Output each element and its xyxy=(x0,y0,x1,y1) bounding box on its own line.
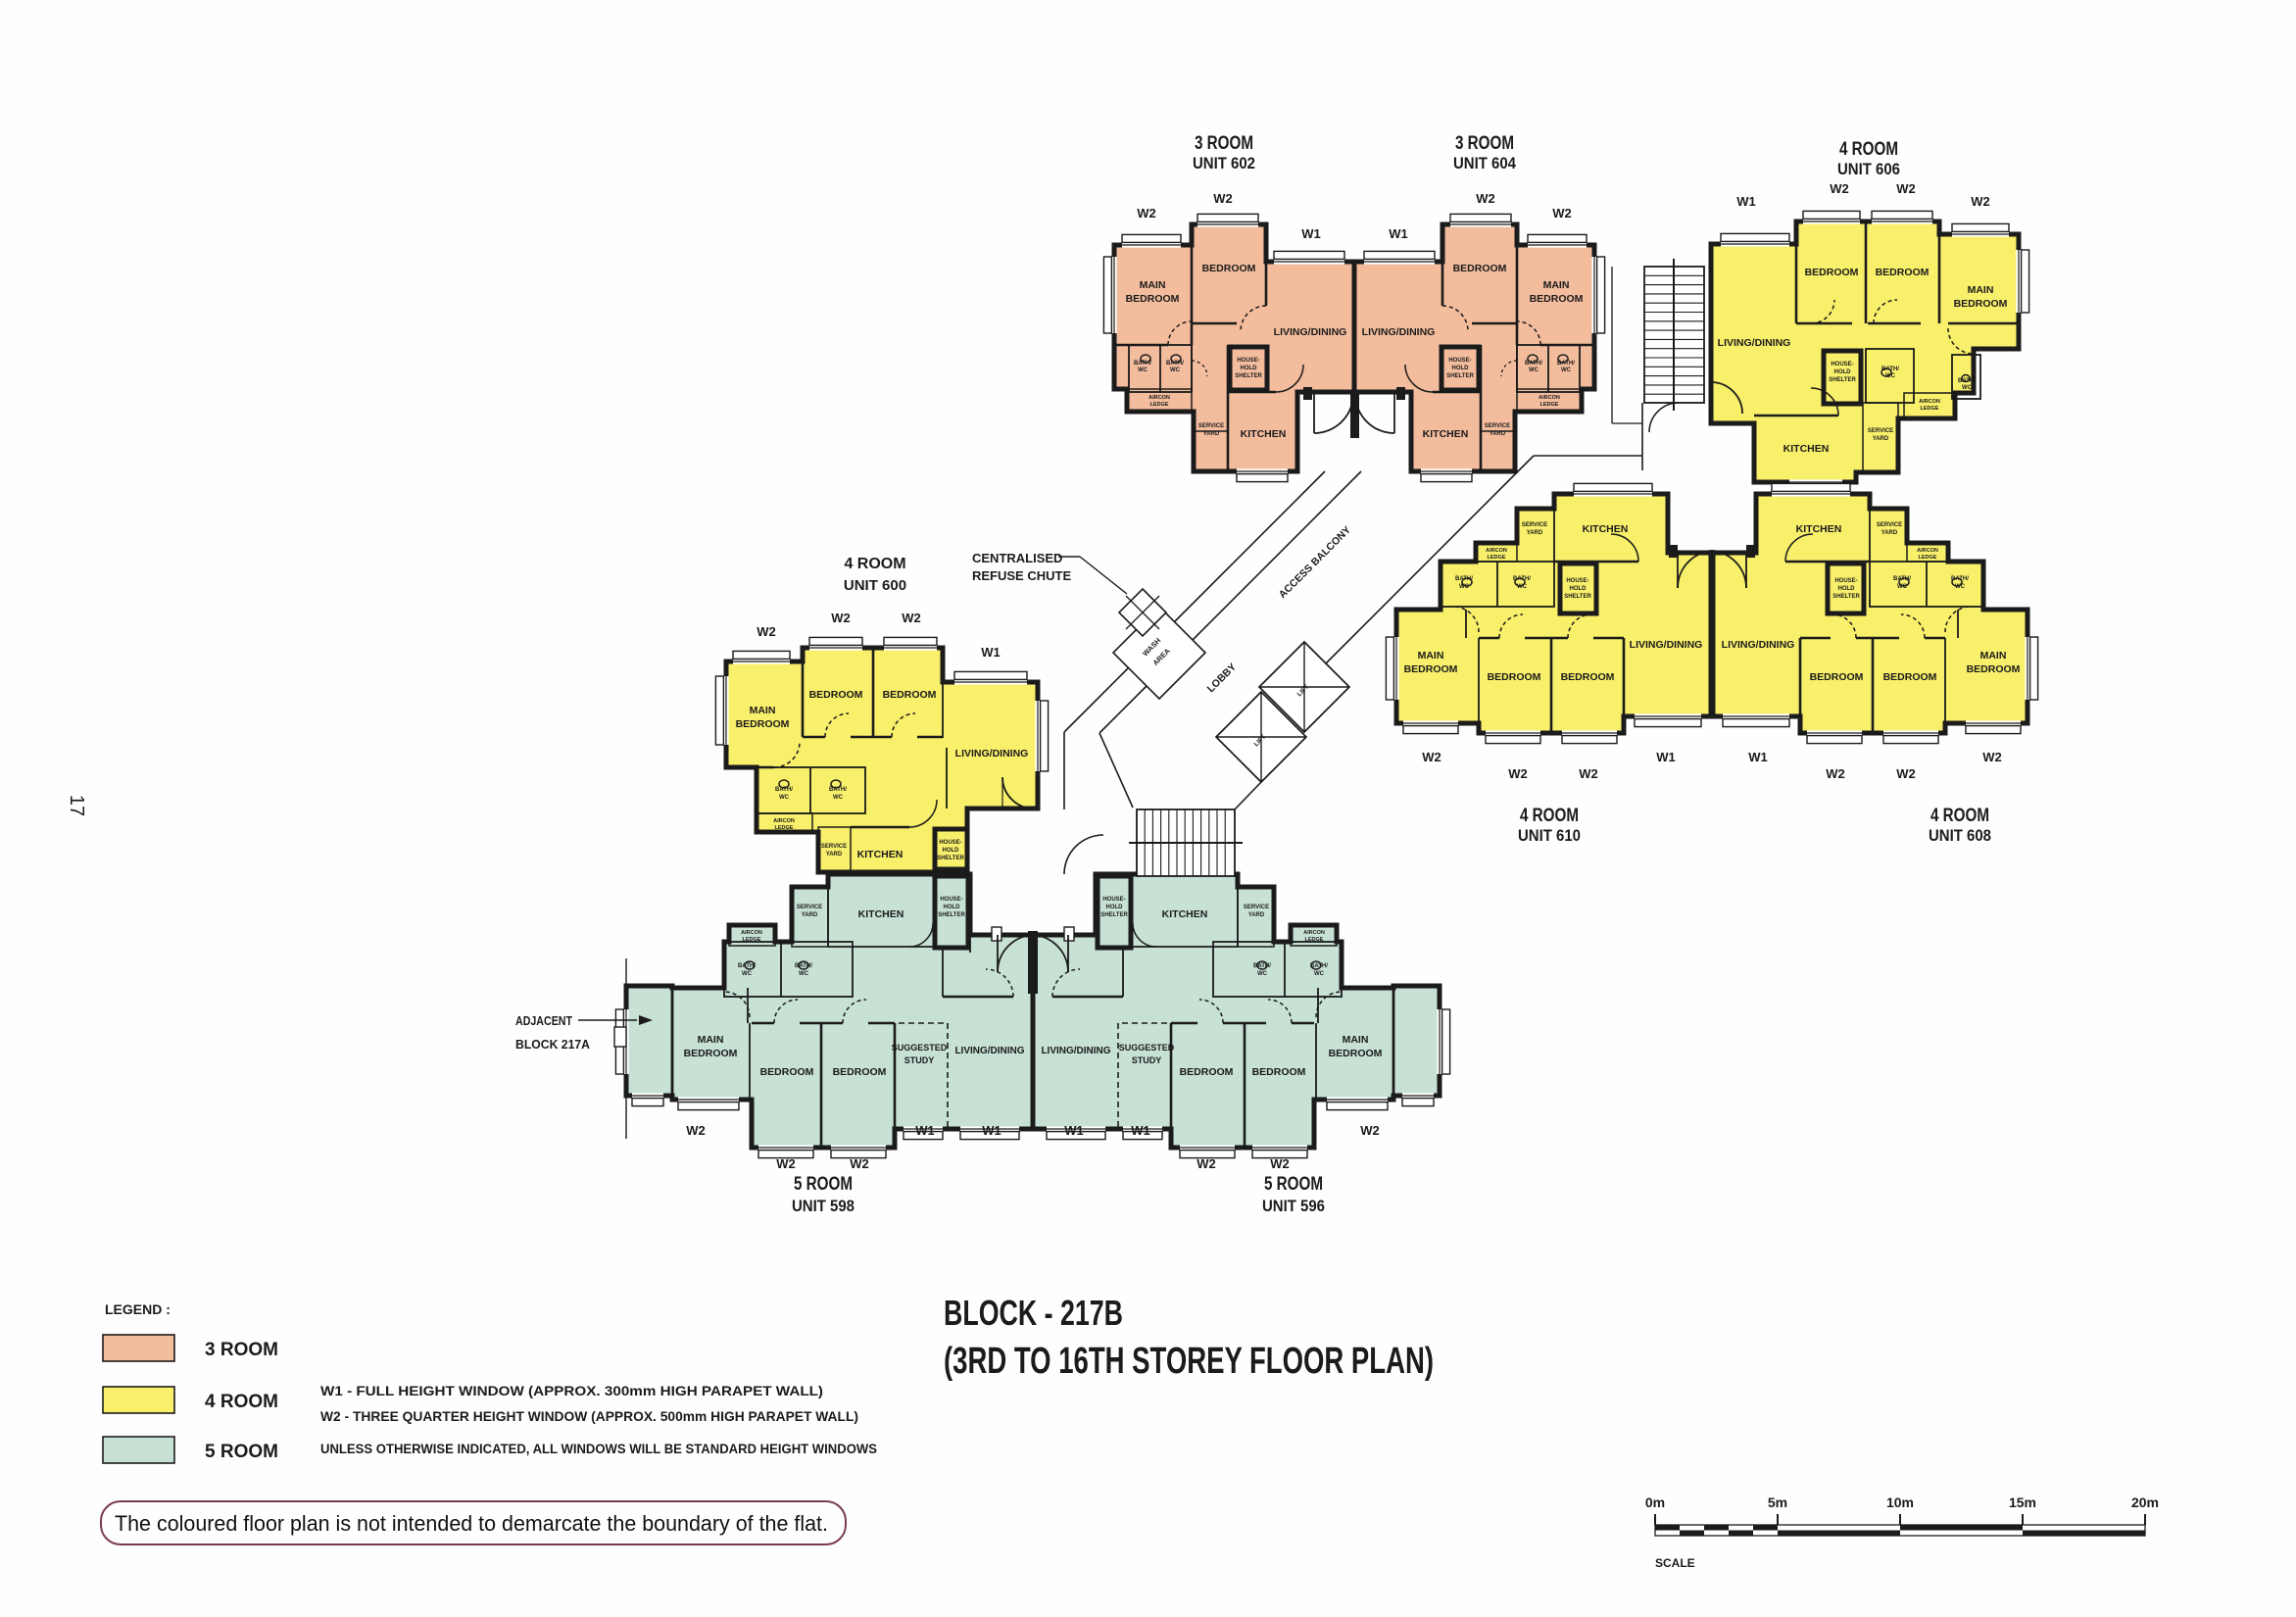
svg-text:SHELTER: SHELTER xyxy=(938,912,965,918)
svg-text:KITCHEN: KITCHEN xyxy=(858,908,904,920)
svg-text:HOLD: HOLD xyxy=(1838,586,1856,592)
svg-text:BEDROOM: BEDROOM xyxy=(833,1066,887,1078)
svg-text:KITCHEN: KITCHEN xyxy=(1796,523,1842,535)
svg-text:CENTRALISED: CENTRALISED xyxy=(972,551,1062,565)
svg-text:BEDROOM: BEDROOM xyxy=(1805,267,1859,278)
svg-text:W2: W2 xyxy=(776,1156,796,1171)
svg-text:WC: WC xyxy=(799,971,809,977)
svg-text:AIRCON: AIRCON xyxy=(1303,930,1325,936)
svg-text:BEDROOM: BEDROOM xyxy=(1967,663,2021,675)
svg-text:5 ROOM: 5 ROOM xyxy=(205,1442,278,1462)
svg-text:LIVING/DINING: LIVING/DINING xyxy=(1630,639,1703,651)
svg-text:KITCHEN: KITCHEN xyxy=(857,849,904,860)
svg-text:W2: W2 xyxy=(1476,191,1495,206)
svg-text:UNIT 610: UNIT 610 xyxy=(1518,826,1581,845)
svg-text:SHELTER: SHELTER xyxy=(1100,912,1128,918)
svg-text:BEDROOM: BEDROOM xyxy=(684,1048,738,1059)
svg-text:BEDROOM: BEDROOM xyxy=(760,1066,814,1078)
svg-text:HOUSE-: HOUSE- xyxy=(1831,362,1853,367)
svg-text:5 ROOM: 5 ROOM xyxy=(1264,1174,1323,1195)
svg-text:W2: W2 xyxy=(757,624,776,639)
svg-text:BEDROOM: BEDROOM xyxy=(736,718,790,730)
svg-text:W1: W1 xyxy=(1064,1123,1084,1138)
svg-text:SHELTER: SHELTER xyxy=(1564,594,1591,600)
svg-text:BATH/: BATH/ xyxy=(1881,367,1899,372)
svg-text:SERVICE: SERVICE xyxy=(797,905,822,910)
svg-text:SERVICE: SERVICE xyxy=(1877,522,1902,528)
svg-text:HOLD: HOLD xyxy=(1241,366,1258,371)
svg-text:4 ROOM: 4 ROOM xyxy=(1520,806,1579,826)
svg-text:WC: WC xyxy=(1962,385,1973,391)
svg-text:HOUSE-: HOUSE- xyxy=(1448,358,1471,364)
svg-text:MAIN: MAIN xyxy=(1980,650,2007,661)
svg-text:W1: W1 xyxy=(982,1123,1001,1138)
svg-text:ADJACENT: ADJACENT xyxy=(515,1013,572,1028)
svg-text:KITCHEN: KITCHEN xyxy=(1241,428,1287,440)
svg-text:LEDGE: LEDGE xyxy=(1919,555,1937,561)
svg-text:MAIN: MAIN xyxy=(1543,279,1570,291)
svg-text:UNIT 596: UNIT 596 xyxy=(1262,1197,1325,1215)
svg-text:BATH/: BATH/ xyxy=(775,787,793,793)
svg-text:UNIT 602: UNIT 602 xyxy=(1193,154,1255,172)
svg-text:W2: W2 xyxy=(1971,194,1990,209)
svg-text:3 ROOM: 3 ROOM xyxy=(1455,133,1514,154)
svg-text:BLOCK - 217B: BLOCK - 217B xyxy=(944,1293,1123,1333)
svg-text:YARD: YARD xyxy=(1527,530,1543,536)
svg-text:W2: W2 xyxy=(902,611,921,625)
svg-text:BEDROOM: BEDROOM xyxy=(1453,263,1507,274)
svg-text:WC: WC xyxy=(833,795,844,801)
svg-text:W2: W2 xyxy=(686,1123,706,1138)
svg-text:W1 - FULL HEIGHT WINDOW (APPRO: W1 - FULL HEIGHT WINDOW (APPROX. 300mm H… xyxy=(320,1383,823,1398)
svg-text:BLOCK 217A: BLOCK 217A xyxy=(515,1037,591,1052)
svg-text:HOUSE-: HOUSE- xyxy=(1237,358,1259,364)
svg-text:LEDGE: LEDGE xyxy=(1540,402,1559,408)
svg-text:SERVICE: SERVICE xyxy=(821,844,847,850)
svg-text:BATH/: BATH/ xyxy=(1525,361,1542,367)
svg-text:WC: WC xyxy=(1955,584,1966,590)
svg-text:LIVING/DINING: LIVING/DINING xyxy=(1718,337,1791,349)
svg-text:15m: 15m xyxy=(2009,1494,2036,1510)
svg-text:SERVICE: SERVICE xyxy=(1485,423,1510,429)
svg-text:BEDROOM: BEDROOM xyxy=(1954,298,2008,310)
svg-text:WC: WC xyxy=(1138,367,1148,373)
svg-text:BATH/: BATH/ xyxy=(1557,361,1575,367)
svg-text:BATH/: BATH/ xyxy=(795,963,812,969)
svg-text:W1: W1 xyxy=(1656,750,1676,764)
svg-text:MAIN: MAIN xyxy=(750,705,776,716)
svg-text:BATH/: BATH/ xyxy=(829,787,847,793)
svg-text:BEDROOM: BEDROOM xyxy=(1252,1066,1306,1078)
svg-text:BATH/: BATH/ xyxy=(1310,963,1328,969)
svg-text:W2: W2 xyxy=(1422,750,1441,764)
svg-text:WC: WC xyxy=(1314,971,1325,977)
svg-text:20m: 20m xyxy=(2131,1494,2159,1510)
svg-text:W1: W1 xyxy=(981,645,1001,660)
svg-text:AIRCON: AIRCON xyxy=(1917,548,1938,554)
svg-text:SHELTER: SHELTER xyxy=(1446,373,1474,379)
svg-text:LEDGE: LEDGE xyxy=(743,937,761,943)
svg-text:KITCHEN: KITCHEN xyxy=(1583,523,1629,535)
svg-text:W1: W1 xyxy=(1736,194,1756,209)
svg-text:BATH/: BATH/ xyxy=(1253,963,1271,969)
svg-text:BEDROOM: BEDROOM xyxy=(883,689,937,701)
svg-text:W2: W2 xyxy=(1896,766,1916,781)
svg-text:3 ROOM: 3 ROOM xyxy=(1195,133,1253,154)
svg-text:SHELTER: SHELTER xyxy=(1829,377,1856,383)
svg-text:SUGGESTED: SUGGESTED xyxy=(892,1043,948,1053)
svg-text:UNLESS OTHERWISE INDICATED, AL: UNLESS OTHERWISE INDICATED, ALL WINDOWS … xyxy=(320,1441,877,1456)
svg-text:LIVING/DINING: LIVING/DINING xyxy=(1274,326,1347,338)
svg-text:W1: W1 xyxy=(1301,226,1321,241)
svg-text:HOUSE-: HOUSE- xyxy=(939,840,961,846)
svg-text:SERVICE: SERVICE xyxy=(1522,522,1547,528)
svg-text:BATH/: BATH/ xyxy=(1166,361,1184,367)
svg-text:YARD: YARD xyxy=(802,912,818,918)
svg-text:LEDGE: LEDGE xyxy=(1305,937,1324,943)
svg-text:MAIN: MAIN xyxy=(1343,1034,1369,1046)
svg-text:WC: WC xyxy=(1517,584,1528,590)
svg-text:YARD: YARD xyxy=(826,852,843,857)
svg-text:BEDROOM: BEDROOM xyxy=(1488,671,1541,683)
svg-text:W2: W2 xyxy=(1896,181,1916,196)
svg-text:YARD: YARD xyxy=(1881,530,1898,536)
svg-text:LEDGE: LEDGE xyxy=(1488,555,1506,561)
svg-text:HOLD: HOLD xyxy=(1834,369,1852,375)
svg-text:W2 - THREE QUARTER HEIGHT WIND: W2 - THREE QUARTER HEIGHT WINDOW (APPROX… xyxy=(320,1408,858,1424)
svg-text:W2: W2 xyxy=(1579,766,1598,781)
svg-text:KITCHEN: KITCHEN xyxy=(1783,443,1830,455)
svg-text:BEDROOM: BEDROOM xyxy=(1876,267,1930,278)
svg-text:W2: W2 xyxy=(1982,750,2002,764)
svg-text:W2: W2 xyxy=(1360,1123,1380,1138)
svg-text:5 ROOM: 5 ROOM xyxy=(794,1174,853,1195)
svg-text:STUDY: STUDY xyxy=(904,1055,935,1065)
svg-text:BATH/: BATH/ xyxy=(1958,378,1976,384)
svg-text:AIRCON: AIRCON xyxy=(1919,399,1940,405)
svg-text:UNIT 604: UNIT 604 xyxy=(1453,154,1516,172)
svg-text:LIVING/DINING: LIVING/DINING xyxy=(1722,639,1795,651)
svg-text:WC: WC xyxy=(1885,373,1896,379)
svg-text:WC: WC xyxy=(1897,584,1908,590)
svg-text:KITCHEN: KITCHEN xyxy=(1162,908,1208,920)
svg-text:BATH/: BATH/ xyxy=(1513,576,1531,582)
svg-text:LIVING/DINING: LIVING/DINING xyxy=(955,748,1029,759)
svg-text:W2: W2 xyxy=(1508,766,1528,781)
svg-text:MAIN: MAIN xyxy=(1418,650,1444,661)
svg-text:W2: W2 xyxy=(831,611,851,625)
svg-text:UNIT 608: UNIT 608 xyxy=(1929,826,1991,845)
svg-text:AIRCON: AIRCON xyxy=(1486,548,1507,554)
svg-text:HOUSE-: HOUSE- xyxy=(1566,578,1588,584)
svg-text:BATH/: BATH/ xyxy=(738,963,756,969)
svg-text:WC: WC xyxy=(779,795,790,801)
svg-text:STUDY: STUDY xyxy=(1132,1055,1162,1065)
svg-text:SERVICE: SERVICE xyxy=(1244,905,1269,910)
svg-text:4 ROOM: 4 ROOM xyxy=(205,1392,278,1412)
svg-text:MAIN: MAIN xyxy=(1140,279,1166,291)
svg-text:HOUSE-: HOUSE- xyxy=(1834,578,1857,584)
svg-text:SHELTER: SHELTER xyxy=(1832,594,1860,600)
svg-text:LIVING/DINING: LIVING/DINING xyxy=(1362,326,1436,338)
svg-text:10m: 10m xyxy=(1886,1494,1914,1510)
svg-text:4 ROOM: 4 ROOM xyxy=(1839,139,1898,160)
svg-text:AIRCON: AIRCON xyxy=(1148,395,1170,401)
svg-text:SUGGESTED: SUGGESTED xyxy=(1119,1043,1175,1053)
svg-text:3 ROOM: 3 ROOM xyxy=(205,1340,278,1360)
svg-text:LEDGE: LEDGE xyxy=(1150,402,1169,408)
svg-text:WC: WC xyxy=(1561,367,1572,373)
svg-text:W2: W2 xyxy=(1197,1156,1216,1171)
svg-text:WC: WC xyxy=(742,971,753,977)
svg-text:BATH/: BATH/ xyxy=(1134,361,1151,367)
svg-text:BEDROOM: BEDROOM xyxy=(1180,1066,1234,1078)
svg-text:LIVING/DINING: LIVING/DINING xyxy=(1041,1046,1110,1056)
svg-text:LEGEND :: LEGEND : xyxy=(105,1301,171,1317)
svg-text:W1: W1 xyxy=(1389,226,1408,241)
svg-text:BEDROOM: BEDROOM xyxy=(809,689,863,701)
svg-text:KITCHEN: KITCHEN xyxy=(1423,428,1469,440)
svg-text:SERVICE: SERVICE xyxy=(1868,428,1893,434)
svg-text:17: 17 xyxy=(66,795,87,816)
svg-text:YARD: YARD xyxy=(1490,431,1506,437)
svg-text:WC: WC xyxy=(1459,584,1470,590)
svg-text:The coloured floor plan is not: The coloured floor plan is not intended … xyxy=(115,1511,828,1536)
svg-text:W2: W2 xyxy=(1830,181,1849,196)
svg-text:MAIN: MAIN xyxy=(698,1034,724,1046)
svg-text:W2: W2 xyxy=(1137,206,1156,220)
svg-text:SCALE: SCALE xyxy=(1655,1556,1695,1570)
svg-text:HOLD: HOLD xyxy=(943,848,960,854)
svg-text:4 ROOM: 4 ROOM xyxy=(1930,806,1989,826)
svg-text:BATH/: BATH/ xyxy=(1455,576,1473,582)
svg-text:AIRCON: AIRCON xyxy=(773,818,795,824)
svg-text:MAIN: MAIN xyxy=(1968,284,1994,296)
svg-text:0m: 0m xyxy=(1645,1494,1665,1510)
svg-text:SHELTER: SHELTER xyxy=(937,856,964,861)
svg-text:REFUSE CHUTE: REFUSE CHUTE xyxy=(972,568,1071,583)
svg-text:WC: WC xyxy=(1257,971,1268,977)
svg-text:HOUSE-: HOUSE- xyxy=(1102,897,1125,903)
svg-text:BEDROOM: BEDROOM xyxy=(1202,263,1256,274)
svg-text:LEDGE: LEDGE xyxy=(775,825,794,831)
svg-text:(3RD TO 16TH STOREY FLOOR PLAN: (3RD TO 16TH STOREY FLOOR PLAN) xyxy=(944,1341,1434,1382)
svg-text:HOUSE-: HOUSE- xyxy=(940,897,962,903)
svg-text:WC: WC xyxy=(1170,367,1181,373)
svg-text:YARD: YARD xyxy=(1203,431,1220,437)
svg-text:AIRCON: AIRCON xyxy=(1539,395,1560,401)
svg-text:BEDROOM: BEDROOM xyxy=(1404,663,1458,675)
svg-text:HOLD: HOLD xyxy=(1570,586,1588,592)
svg-text:BEDROOM: BEDROOM xyxy=(1810,671,1864,683)
svg-text:SHELTER: SHELTER xyxy=(1235,373,1262,379)
svg-text:BEDROOM: BEDROOM xyxy=(1329,1048,1383,1059)
svg-text:AIRCON: AIRCON xyxy=(741,930,762,936)
svg-text:YARD: YARD xyxy=(1873,436,1889,442)
svg-text:SERVICE: SERVICE xyxy=(1198,423,1224,429)
svg-text:5m: 5m xyxy=(1768,1494,1787,1510)
svg-text:W2: W2 xyxy=(1270,1156,1290,1171)
svg-text:HOLD: HOLD xyxy=(944,905,961,910)
svg-text:BATH/: BATH/ xyxy=(1951,576,1969,582)
svg-text:BATH/: BATH/ xyxy=(1893,576,1911,582)
svg-text:W2: W2 xyxy=(1213,191,1233,206)
svg-text:W1: W1 xyxy=(1131,1123,1150,1138)
svg-text:HOLD: HOLD xyxy=(1106,905,1124,910)
svg-text:YARD: YARD xyxy=(1248,912,1265,918)
svg-text:UNIT 598: UNIT 598 xyxy=(792,1197,855,1215)
svg-text:W2: W2 xyxy=(1826,766,1845,781)
svg-text:W1: W1 xyxy=(915,1123,935,1138)
svg-text:4 ROOM: 4 ROOM xyxy=(844,556,905,572)
svg-text:LIVING/DINING: LIVING/DINING xyxy=(954,1046,1024,1056)
svg-text:UNIT 606: UNIT 606 xyxy=(1837,160,1900,178)
svg-text:W2: W2 xyxy=(1552,206,1572,220)
svg-text:UNIT 600: UNIT 600 xyxy=(844,577,906,594)
svg-text:BEDROOM: BEDROOM xyxy=(1530,293,1584,305)
svg-text:BEDROOM: BEDROOM xyxy=(1883,671,1937,683)
svg-text:W2: W2 xyxy=(850,1156,869,1171)
svg-text:HOLD: HOLD xyxy=(1452,366,1470,371)
svg-text:BEDROOM: BEDROOM xyxy=(1126,293,1180,305)
svg-text:WC: WC xyxy=(1529,367,1539,373)
svg-text:W1: W1 xyxy=(1748,750,1768,764)
svg-text:LEDGE: LEDGE xyxy=(1921,406,1939,412)
svg-text:BEDROOM: BEDROOM xyxy=(1561,671,1615,683)
